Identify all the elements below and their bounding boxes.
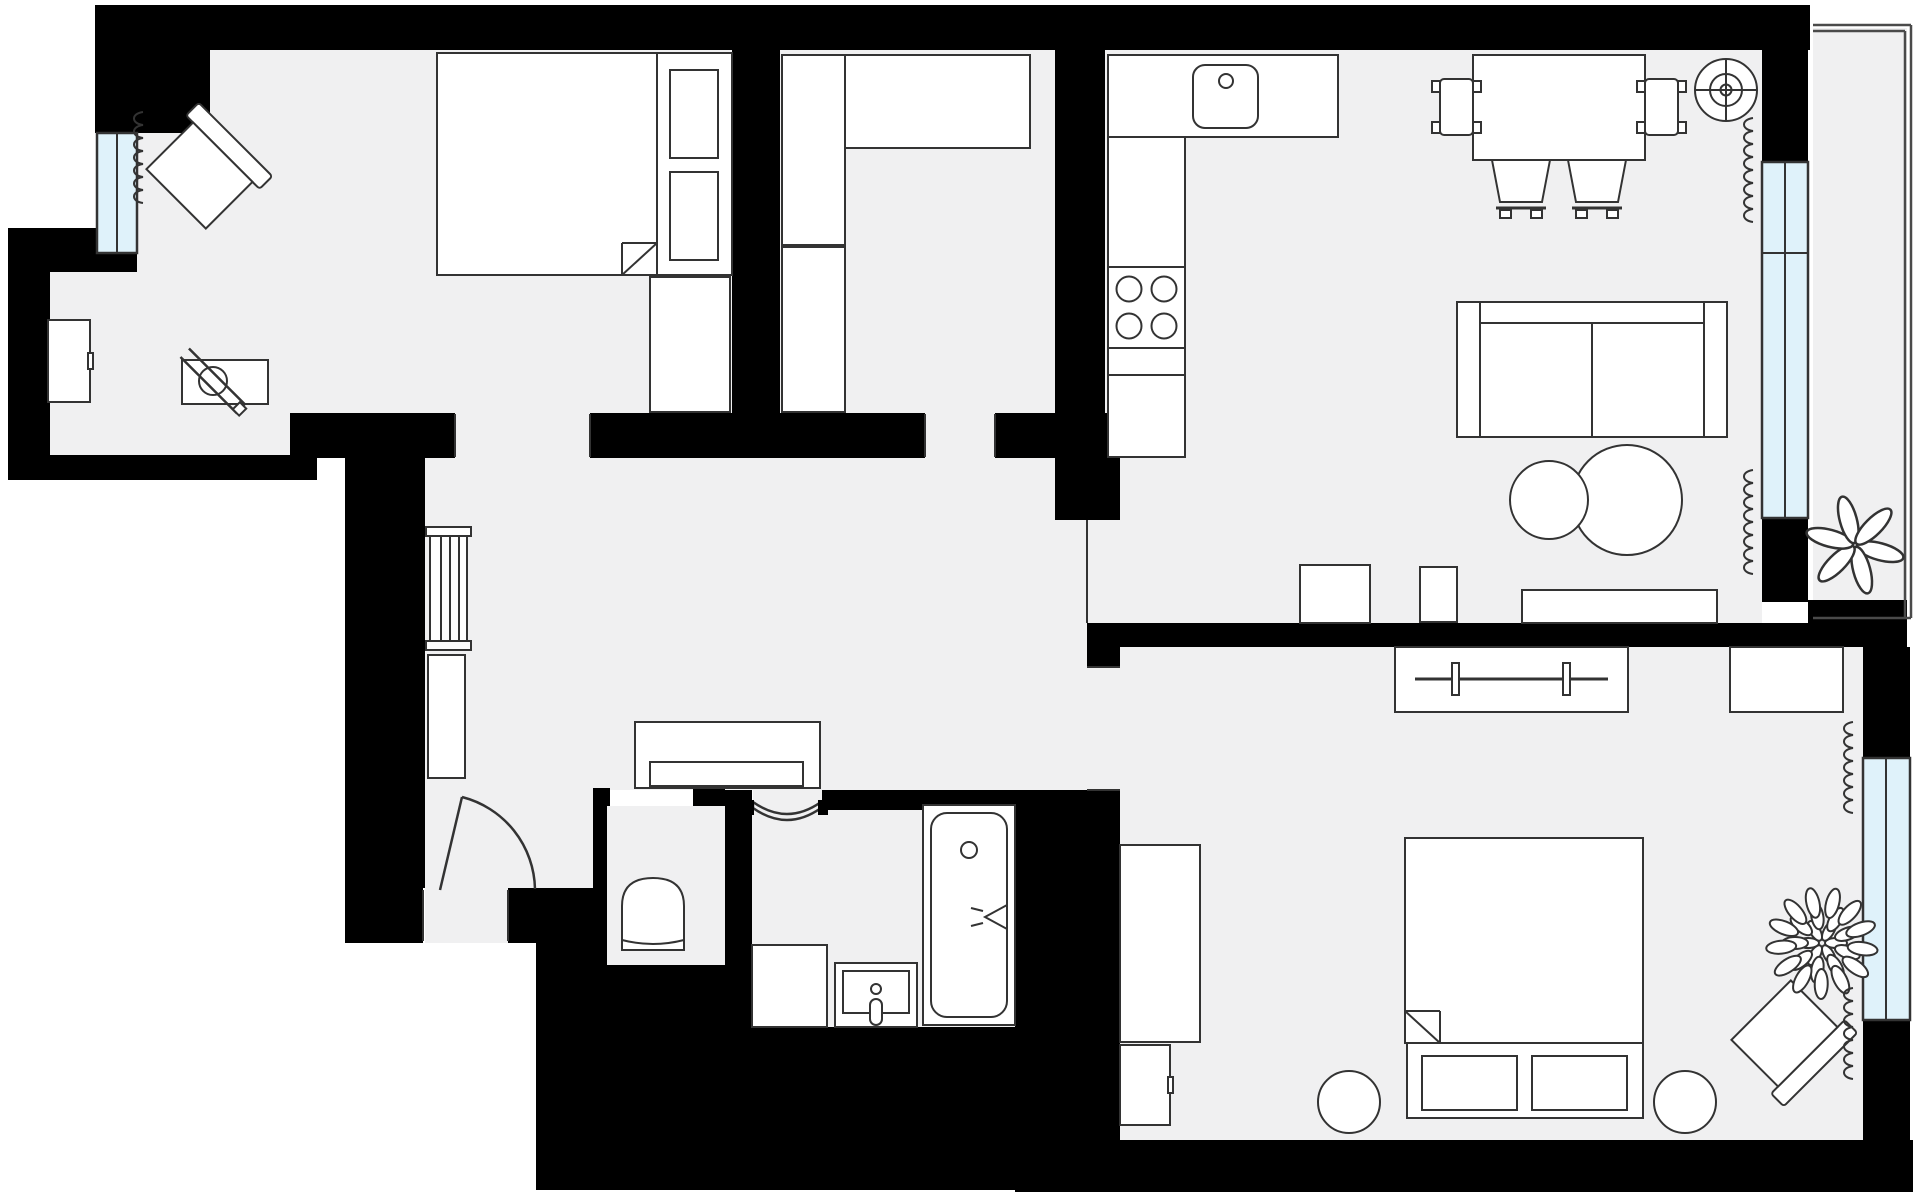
hallway-radiator xyxy=(426,527,471,650)
dining-chair-bottom-2 xyxy=(1568,160,1626,218)
hallway-console xyxy=(635,722,820,788)
wardrobe-bedroom-2-hanger-icon xyxy=(1563,663,1570,695)
cabinet-alcove-handle xyxy=(88,353,93,369)
wall xyxy=(8,228,97,272)
wall xyxy=(1863,1020,1910,1140)
kitchen-stove xyxy=(1108,267,1185,348)
dining-chair-right-foot xyxy=(1678,122,1686,133)
sofa xyxy=(1457,302,1727,437)
dining-chair-right xyxy=(1637,79,1686,135)
wardrobe-bedroom-2-hanger-icon xyxy=(1452,663,1459,695)
bathtub-drain xyxy=(961,842,977,858)
wall xyxy=(97,253,137,272)
wall xyxy=(1087,623,1810,647)
bathtub xyxy=(923,805,1015,1025)
floor-walk-in-closet xyxy=(925,413,995,458)
sofa-cushion xyxy=(1592,323,1704,437)
wall xyxy=(8,272,50,480)
floor-bedroom-1 xyxy=(135,413,290,455)
dining-chair-bottom-1-seat xyxy=(1492,160,1550,202)
sofa-cushion xyxy=(1480,323,1592,437)
bathroom-door-jamb xyxy=(818,800,828,815)
kitchen-faucet-icon xyxy=(1219,74,1233,88)
kitchen-cabinet-tall xyxy=(1108,137,1185,267)
dining-chair-bottom-2-foot xyxy=(1607,210,1618,218)
desk-bedroom-2 xyxy=(1730,647,1843,712)
floor-hallway xyxy=(1087,647,1120,790)
kitchen-cabinet-lower xyxy=(1108,375,1185,457)
tv-stand xyxy=(1522,590,1717,623)
kitchen-stove-top xyxy=(1108,267,1185,348)
wall xyxy=(536,930,607,1190)
wall xyxy=(290,413,455,458)
sofa-armrest xyxy=(1457,302,1480,437)
dining-chair-bottom-2-foot xyxy=(1576,210,1587,218)
hallway-cabinet xyxy=(428,655,465,778)
kitchen-counter-sink xyxy=(1108,55,1338,137)
hallway-radiator-cap xyxy=(426,641,471,650)
dining-chair-right-foot xyxy=(1678,81,1686,92)
wardrobe-closet-lower xyxy=(782,247,845,412)
wall xyxy=(725,790,752,1027)
bed-2-bench-cushion xyxy=(1532,1056,1627,1110)
wall xyxy=(8,455,317,480)
dining-chair-bottom-1-foot xyxy=(1500,210,1511,218)
bed-2 xyxy=(1405,838,1643,1043)
bed-2-bench-cushion xyxy=(1422,1056,1517,1110)
cabinet-tall-bedroom-2 xyxy=(1120,845,1200,1042)
dining-chair-bottom-1-foot xyxy=(1531,210,1542,218)
nightstand-upper xyxy=(670,70,718,158)
wall xyxy=(732,50,780,413)
dresser-bedroom-1 xyxy=(650,277,730,412)
wall xyxy=(593,806,607,965)
cabinet-living-left xyxy=(1420,567,1457,622)
kitchen-counter-segment xyxy=(1108,348,1185,375)
bathroom-sink-faucet-icon xyxy=(871,984,881,994)
cabinet-small-bedroom-2-handle xyxy=(1168,1077,1173,1093)
dining-chair-left-seat xyxy=(1440,79,1473,135)
cabinet-small-bedroom-2 xyxy=(1120,1045,1170,1125)
wall xyxy=(725,1027,1015,1190)
plant-bedroom-2-leaf xyxy=(1814,969,1828,999)
cabinet-alcove xyxy=(48,320,90,402)
wardrobe-closet-upper xyxy=(782,55,845,245)
ceiling-fan-symbol xyxy=(1695,59,1757,121)
bed-2-bench xyxy=(1407,1043,1643,1118)
wall xyxy=(590,413,925,458)
wall xyxy=(995,413,1055,458)
wardrobe-bedroom-2 xyxy=(1395,647,1628,712)
hallway-radiator-cap xyxy=(426,527,471,536)
stool-right xyxy=(1654,1071,1716,1133)
wall xyxy=(693,788,725,806)
toilet-bowl xyxy=(622,878,684,950)
bathroom-sink-handle xyxy=(870,999,882,1025)
wall xyxy=(1015,1140,1913,1192)
stool-left xyxy=(1318,1071,1380,1133)
dining-chair-left-foot xyxy=(1432,122,1440,133)
bed-1-mattress xyxy=(437,53,657,275)
dining-chair-right-foot xyxy=(1637,122,1645,133)
dining-chair-left-foot xyxy=(1432,81,1440,92)
wall xyxy=(95,5,1810,50)
floor-plan-canvas xyxy=(0,0,1920,1195)
sofa-armrest xyxy=(1704,302,1727,437)
floor-bedroom-1 xyxy=(455,413,590,458)
dining-chair-bottom-1 xyxy=(1492,160,1550,218)
wall xyxy=(345,888,423,943)
bed-1 xyxy=(437,53,657,275)
hallway-console-drawer xyxy=(650,762,803,786)
wall xyxy=(607,965,725,1190)
wall xyxy=(1808,600,1907,647)
hallway-radiator-body xyxy=(430,536,467,641)
cabinet-living-square xyxy=(1300,565,1370,623)
bathroom-door-jamb xyxy=(744,800,754,815)
dining-chair-right-seat xyxy=(1645,79,1678,135)
dining-chair-left xyxy=(1432,79,1481,135)
wall xyxy=(345,458,425,888)
wall xyxy=(1015,790,1120,1140)
washing-machine xyxy=(752,945,827,1027)
floor-plan xyxy=(0,0,1920,1195)
sofa-backrest xyxy=(1480,302,1704,323)
wall xyxy=(593,788,610,806)
wall xyxy=(1762,518,1808,602)
dining-chair-right-foot xyxy=(1637,81,1645,92)
dining-chair-left-foot xyxy=(1473,122,1481,133)
dining-chair-left-foot xyxy=(1473,81,1481,92)
dining-chair-bottom-2-seat xyxy=(1568,160,1626,202)
toilet xyxy=(622,878,684,950)
nightstand-lower xyxy=(670,172,718,260)
bathroom-sink xyxy=(835,963,917,1027)
wall xyxy=(1762,50,1808,162)
wall xyxy=(1863,647,1910,758)
coffee-table-small xyxy=(1510,461,1588,539)
dining-table xyxy=(1473,55,1645,160)
wall xyxy=(1055,50,1105,413)
closet-shelf xyxy=(845,55,1030,148)
